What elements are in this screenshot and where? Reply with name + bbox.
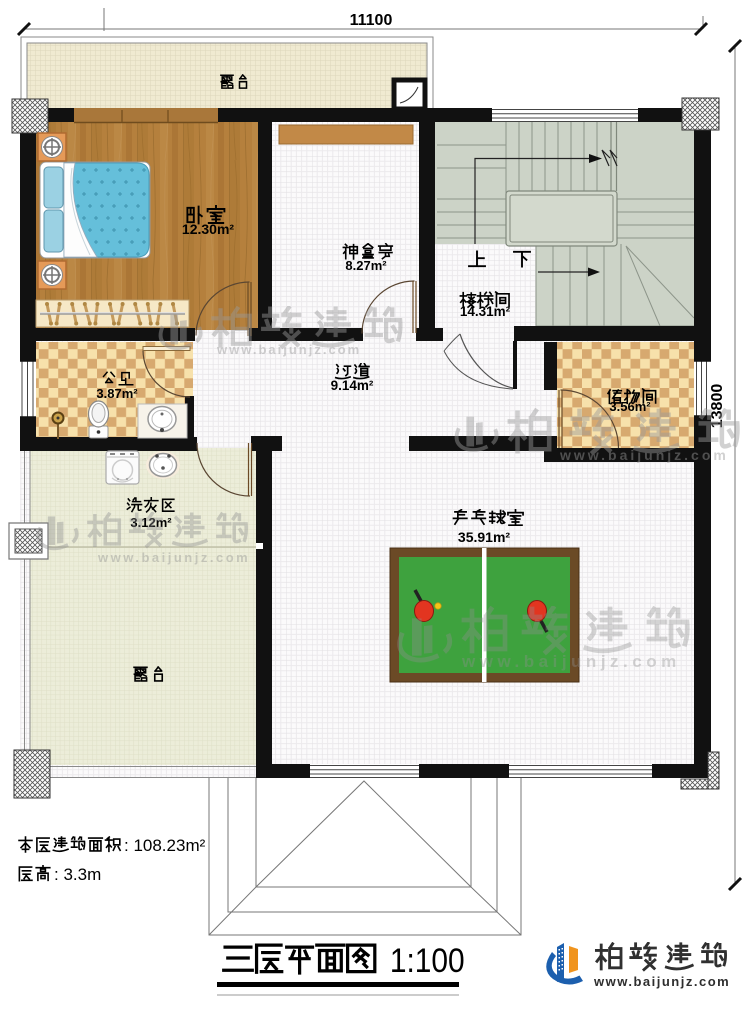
svg-text:9.14m²: 9.14m² xyxy=(331,378,374,393)
svg-text:www.baijunjz.com: www.baijunjz.com xyxy=(559,447,729,463)
svg-text:3.56m²: 3.56m² xyxy=(609,399,651,414)
svg-text:: 108.23m²: : 108.23m² xyxy=(124,836,206,855)
svg-text:www.baijunjz.com: www.baijunjz.com xyxy=(97,550,250,565)
svg-text:www.baijunjz.com: www.baijunjz.com xyxy=(461,652,681,671)
svg-text:www.baijunjz.com: www.baijunjz.com xyxy=(216,342,361,357)
svg-text:3.87m²: 3.87m² xyxy=(96,386,138,401)
svg-text:11100: 11100 xyxy=(350,12,393,29)
svg-text:www.baijunjz.com: www.baijunjz.com xyxy=(593,974,730,989)
svg-text:14.31m²: 14.31m² xyxy=(460,304,511,319)
svg-text:: 3.3m: : 3.3m xyxy=(54,865,101,884)
svg-text:12.30m²: 12.30m² xyxy=(182,221,234,237)
svg-text:1:100: 1:100 xyxy=(390,941,465,979)
svg-text:35.91m²: 35.91m² xyxy=(458,529,510,545)
svg-text:8.27m²: 8.27m² xyxy=(345,258,387,273)
